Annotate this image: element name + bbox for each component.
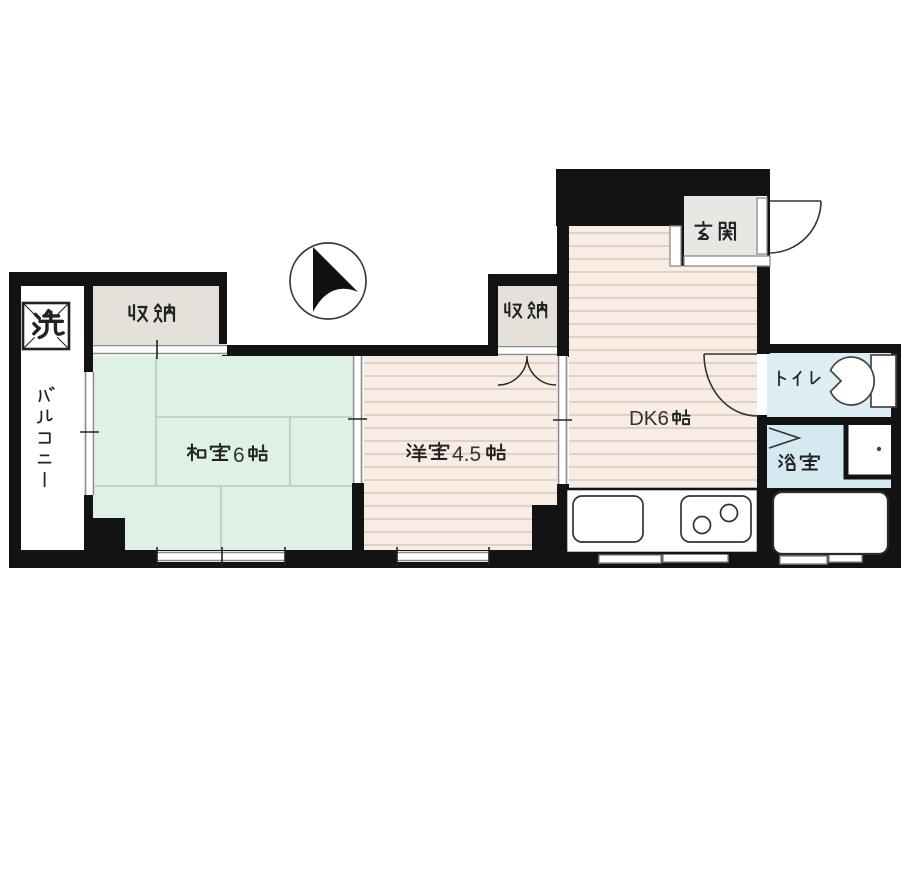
svg-text:DK6: DK6 xyxy=(629,407,669,430)
svg-text:6: 6 xyxy=(233,444,245,467)
svg-text:4.5: 4.5 xyxy=(452,443,481,466)
